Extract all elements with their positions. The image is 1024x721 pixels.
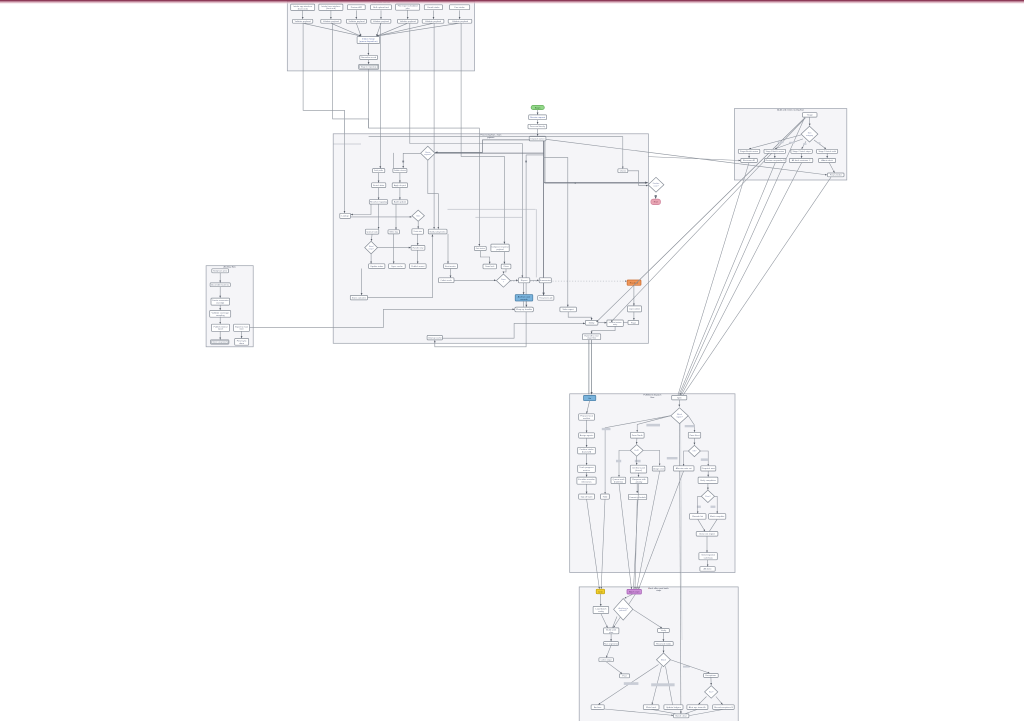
svg-text:Handle retry: Handle retry	[413, 247, 424, 250]
svg-text:Apply rule pack: Apply rule pack	[394, 184, 406, 187]
svg-text:Gate: Gate	[416, 214, 420, 217]
svg-text:Triage: Triage	[807, 114, 814, 117]
svg-text:Assemble batches: Assemble batches	[211, 284, 230, 287]
svg-text:Publish event: Publish event	[411, 265, 425, 268]
svg-text:Store outcome: Store outcome	[352, 296, 367, 299]
svg-text:flow: flow	[651, 397, 655, 399]
svg-text:Stage B batch review: Stage B batch review	[766, 150, 785, 153]
svg-text:Ancillary flow: Ancillary flow	[224, 266, 237, 269]
svg-text:Receive request: Receive request	[530, 116, 545, 119]
svg-text:Dispatch worker: Dispatch worker	[530, 137, 544, 140]
svg-text:Build work: Build work	[606, 628, 617, 631]
svg-text:Normalize record: Normalize record	[361, 56, 376, 59]
svg-text:All desk reviewer C: All desk reviewer C	[792, 159, 811, 162]
svg-text:Mark complete: Mark complete	[710, 515, 725, 518]
svg-text:Get status: Get status	[476, 247, 485, 250]
svg-text:metrics: metrics	[583, 469, 591, 472]
svg-text:Close / wrap batch: Close / wrap batch	[212, 341, 227, 344]
svg-text:Confirm intake: Confirm intake	[579, 448, 594, 451]
svg-text:Audit and review routing flow: Audit and review routing flow	[777, 109, 804, 112]
svg-text:Stage to repository: Stage to repository	[361, 66, 377, 69]
svg-text:Batch close: Batch close	[676, 715, 688, 718]
svg-text:pipeline: pipeline	[487, 137, 495, 139]
svg-text:(hand off): (hand off)	[582, 452, 592, 454]
svg-text:Summarize: Summarize	[540, 279, 552, 282]
svg-text:worklist: worklist	[583, 417, 590, 420]
svg-text:Send ack: Send ack	[485, 266, 495, 268]
svg-text:Lookup: Lookup	[342, 216, 350, 218]
svg-text:(front end): (front end)	[298, 7, 308, 10]
svg-text:Check: Check	[620, 171, 627, 173]
svg-text:Fax intake: Fax intake	[455, 6, 466, 9]
svg-text:Report: Report	[521, 279, 528, 282]
svg-text:(weekly): (weekly)	[216, 303, 224, 305]
svg-text:Audit update: Audit update	[394, 201, 407, 204]
svg-text:Partner API: Partner API	[351, 6, 363, 9]
svg-text:(queue dispatcher): (queue dispatcher)	[359, 40, 378, 43]
svg-text:Update ledgers: Update ledgers	[666, 706, 682, 709]
svg-text:Page: Page	[631, 322, 637, 324]
svg-text:Requeue with: Requeue with	[632, 478, 646, 481]
svg-text:config: config	[598, 611, 605, 613]
svg-text:Validate coverage: Validate coverage	[212, 311, 230, 314]
svg-text:Send regional: Send regional	[701, 554, 715, 557]
svg-text:Close out region: Close out region	[699, 533, 716, 536]
svg-text:Resolve mapping: Resolve mapping	[370, 202, 388, 204]
svg-text:Update index: Update index	[370, 265, 384, 268]
svg-text:Begin: Begin	[535, 107, 541, 109]
svg-text:Run segments: Run segments	[604, 642, 618, 645]
svg-text:report: report	[218, 328, 224, 331]
svg-text:All done: All done	[704, 568, 713, 571]
svg-text:Zone North: Zone North	[632, 434, 644, 437]
svg-text:Queue task: Queue task	[367, 230, 379, 233]
svg-text:Verify: Verify	[661, 629, 667, 632]
svg-text:priority: priority	[636, 481, 643, 484]
svg-text:Full?: Full?	[635, 450, 639, 452]
svg-text:Post: Post	[622, 675, 627, 678]
svg-text:Sev?: Sev?	[709, 692, 713, 694]
svg-text:sampling: sampling	[216, 315, 226, 317]
svg-text:process?: process?	[619, 609, 627, 612]
svg-text:Emit metric: Emit metric	[445, 265, 457, 268]
svg-text:Cron: Cron	[598, 590, 604, 593]
svg-text:Queue work: Queue work	[613, 478, 626, 481]
svg-text:Exceptions: Exceptions	[706, 674, 718, 677]
svg-text:stage flow: stage flow	[587, 337, 597, 340]
svg-text:Split: Split	[677, 396, 682, 399]
svg-text:entry: entry	[613, 323, 617, 326]
svg-text:Reconcile totals: Reconcile totals	[656, 642, 671, 645]
svg-text:Sync cache: Sync cache	[391, 266, 403, 268]
svg-text:Side export: Side export	[563, 308, 574, 311]
svg-text:Stage C batch steps: Stage C batch steps	[793, 150, 811, 153]
svg-text:request?: request?	[424, 153, 431, 156]
svg-text:steps: steps	[656, 589, 661, 592]
svg-text:payload: payload	[496, 249, 503, 251]
svg-text:Parse and classify: Parse and classify	[530, 125, 545, 128]
svg-text:region?: region?	[676, 416, 682, 419]
svg-text:Archive: Archive	[594, 706, 602, 709]
svg-text:done: done	[239, 343, 245, 345]
svg-text:Reviewer A1: Reviewer A1	[743, 159, 756, 162]
svg-text:Stage A batch review: Stage A batch review	[740, 150, 759, 153]
svg-text:Write log: Write log	[390, 231, 399, 234]
svg-text:(hold list): (hold list)	[614, 481, 623, 484]
svg-text:Pass?: Pass?	[705, 496, 710, 498]
svg-text:Validate payload: Validate payload	[323, 20, 340, 23]
svg-text:Assign crew: Assign crew	[653, 467, 664, 470]
svg-text:Verify completion: Verify completion	[700, 479, 717, 482]
svg-text:Rework list: Rework list	[692, 515, 703, 518]
svg-text:Collect output: Collect output	[601, 658, 612, 661]
svg-text:Sign off batch: Sign off batch	[581, 495, 593, 498]
svg-text:Enrich data: Enrich data	[373, 184, 385, 187]
svg-text:OK?: OK?	[693, 451, 697, 453]
svg-text:?: ?	[503, 281, 504, 283]
svg-text:Intake merge: Intake merge	[362, 38, 376, 41]
svg-text:Batch start: Batch start	[629, 590, 640, 593]
svg-text:Match: Match	[661, 659, 666, 662]
svg-text:Collect results: Collect results	[441, 279, 452, 282]
svg-text:Record exceptions B: Record exceptions B	[714, 706, 733, 709]
svg-text:Dispatch now: Dispatch now	[702, 467, 715, 470]
svg-text:milestones: milestones	[581, 481, 591, 484]
svg-text:Log escalation: Log escalation	[629, 308, 640, 311]
svg-text:Close: Close	[503, 266, 509, 268]
svg-text:category: category	[806, 134, 813, 137]
svg-text:Allocate route set: Allocate route set	[676, 467, 692, 470]
svg-text:(shared): (shared)	[635, 470, 642, 472]
svg-text:Alert ops team A+: Alert ops team A+	[689, 706, 707, 709]
svg-text:Notify subsystems: Notify subsystems	[430, 230, 446, 233]
svg-text:Bulk upload tool: Bulk upload tool	[373, 6, 389, 9]
svg-text:Validate payload: Validate payload	[348, 20, 365, 23]
svg-text:Assign agents: Assign agents	[580, 434, 593, 437]
svg-text:summary: summary	[704, 556, 714, 559]
svg-text:Archive case: Archive case	[518, 295, 531, 298]
svg-text:Validate payload: Validate payload	[452, 20, 469, 23]
svg-text:Validate payload: Validate payload	[373, 20, 390, 23]
svg-text:Review responder B: Review responder B	[766, 159, 786, 162]
svg-text:retry?: retry?	[369, 247, 374, 250]
svg-text:Hold: Hold	[603, 496, 608, 498]
svg-text:Post-process job: Post-process job	[539, 297, 552, 300]
svg-text:Validate payload: Validate payload	[295, 20, 312, 23]
svg-text:Load batch: Load batch	[595, 608, 607, 611]
svg-text:records: records	[520, 298, 528, 301]
svg-text:(front end): (front end)	[326, 7, 336, 10]
svg-text:Write back: Write back	[646, 706, 657, 709]
svg-text:Cleanup cache: Cleanup cache	[428, 337, 443, 339]
svg-text:Admin desk: Admin desk	[821, 159, 833, 162]
svg-text:case?: case?	[653, 186, 658, 188]
svg-text:Email intake: Email intake	[428, 6, 441, 9]
svg-text:Validate payload: Validate payload	[425, 20, 442, 23]
svg-text:Validate payload: Validate payload	[400, 20, 417, 23]
svg-text:Track progress: Track progress	[579, 466, 594, 469]
svg-text:Wrap up handler: Wrap up handler	[516, 308, 532, 311]
svg-text:Notify: Notify	[589, 322, 595, 325]
svg-text:Stage D batch audit: Stage D batch audit	[818, 150, 836, 153]
svg-text:Final verdict: Final verdict	[830, 174, 842, 177]
svg-text:Zone East: Zone East	[690, 434, 700, 437]
svg-text:jobs: jobs	[405, 8, 410, 10]
